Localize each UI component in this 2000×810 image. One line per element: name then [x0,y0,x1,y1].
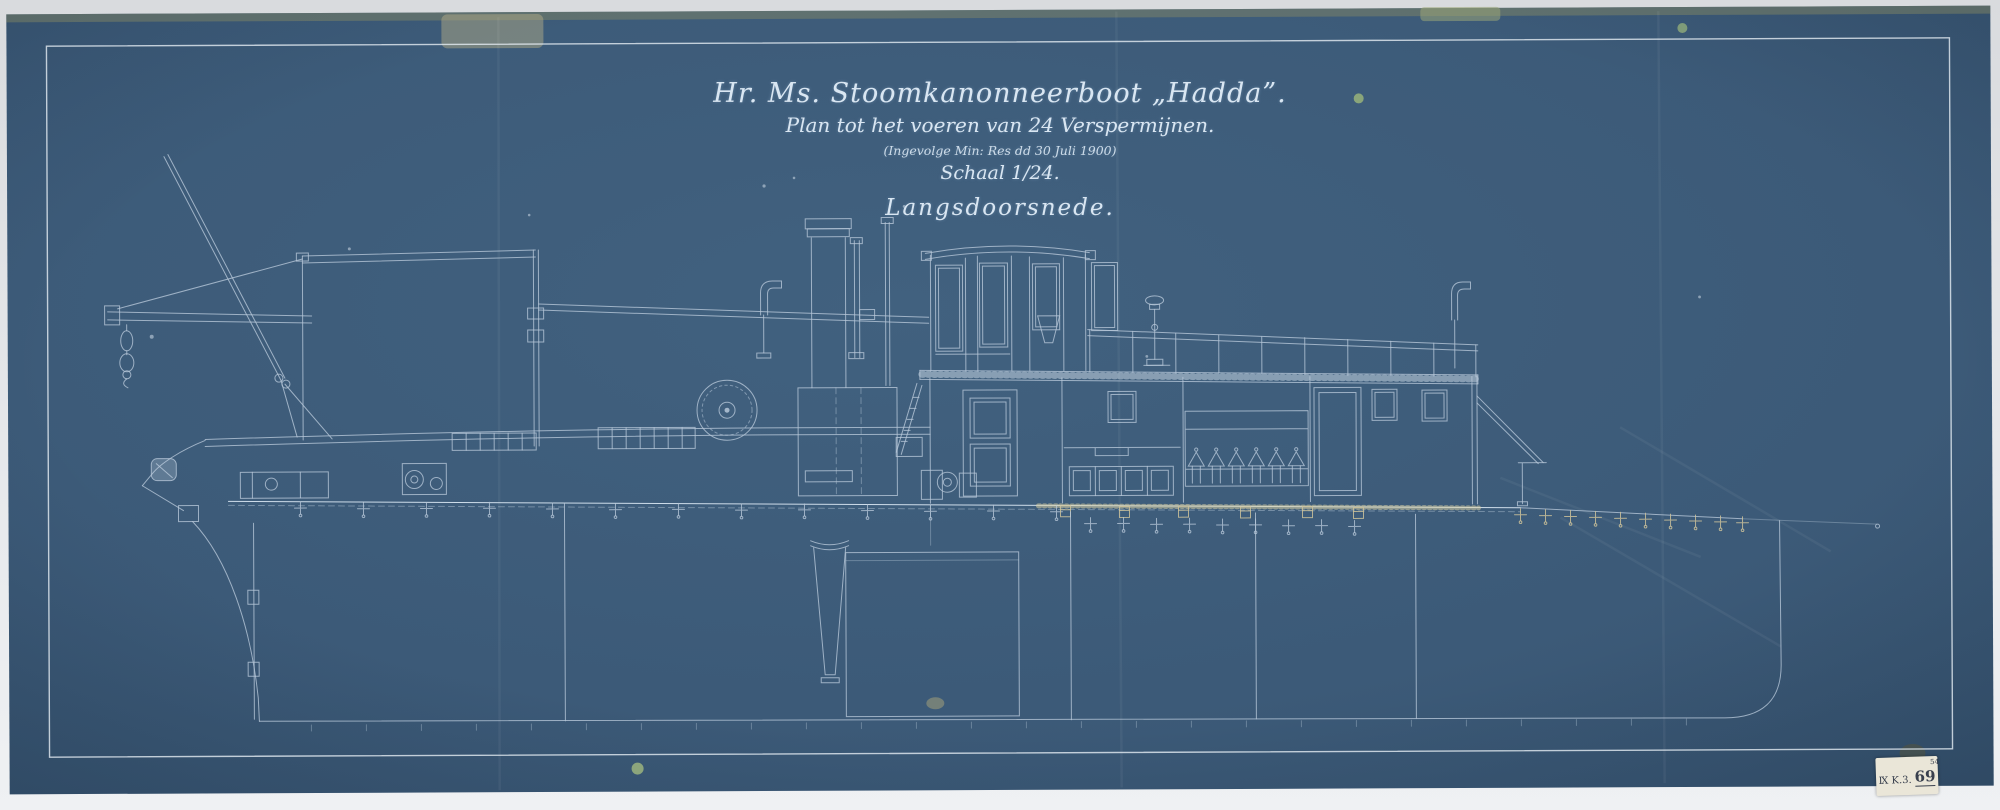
scanned-blueprint-page: Hr. Ms. Stoomkanonneerboot „Hadda”. Plan… [0,0,2000,810]
section-caption: Langsdoorsnede. [650,195,1350,221]
scale-note: Schaal 1/24. [650,162,1350,184]
ship-title: Hr. Ms. Stoomkanonneerboot „Hadda”. [650,78,1350,109]
archive-label: Ⅸ K.3. 54 69 [1875,756,1938,796]
ministerial-reference: (Ingevolge Min: Res dd 30 Juli 1900) [650,143,1350,158]
archive-number: 69 [1914,767,1936,787]
plan-subtitle: Plan tot het voeren van 24 Verspermijnen… [650,113,1350,137]
archive-superscript: 54 [1930,757,1939,765]
archive-series: Ⅸ K.3. [1879,774,1912,786]
title-block: Hr. Ms. Stoomkanonneerboot „Hadda”. Plan… [650,78,1350,221]
